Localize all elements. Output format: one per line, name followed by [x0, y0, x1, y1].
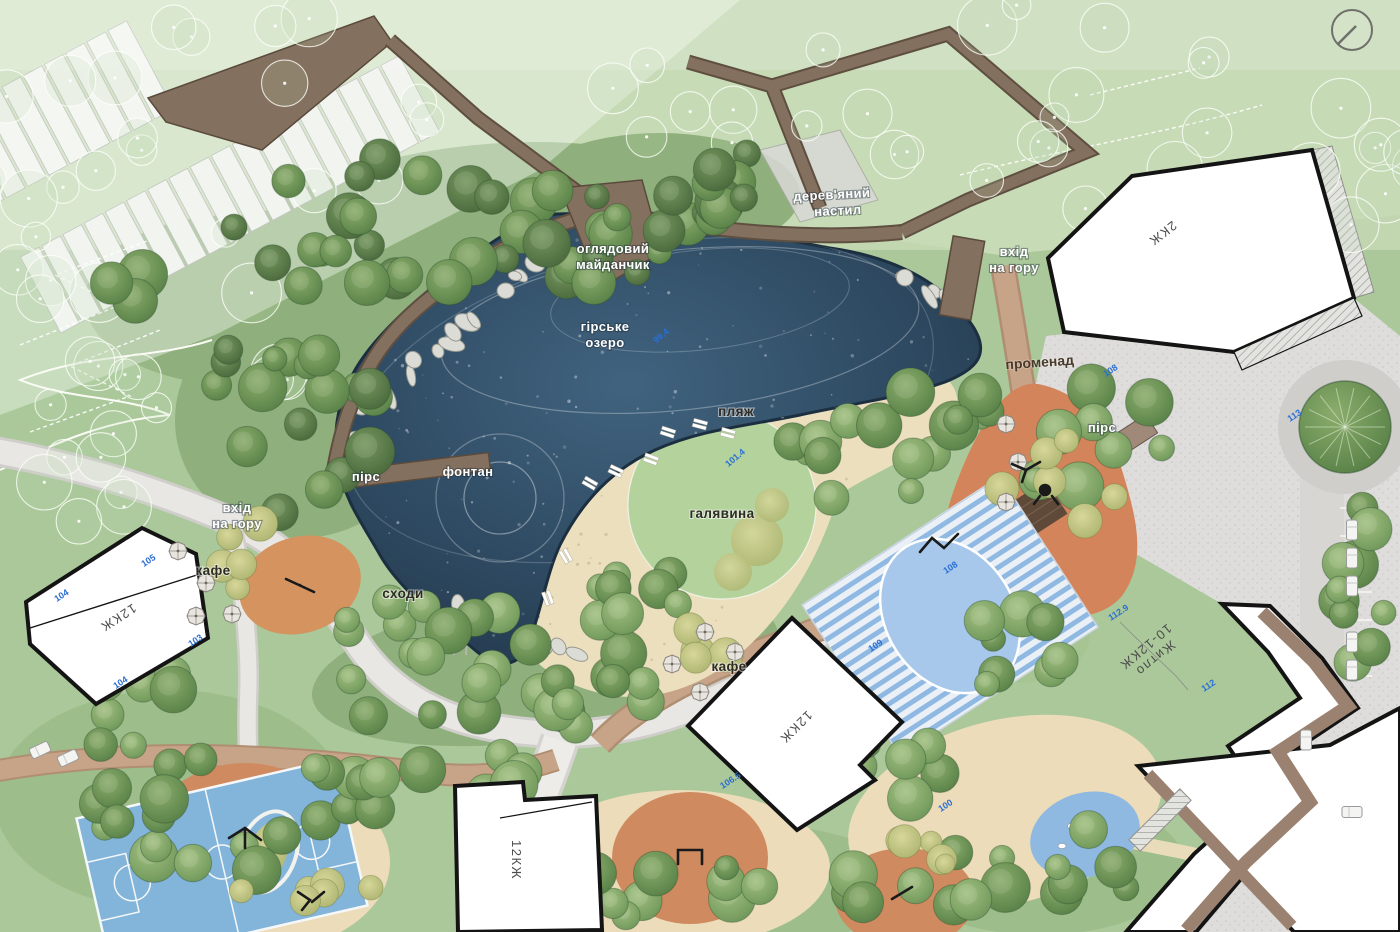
tree	[654, 176, 693, 215]
tree	[741, 868, 777, 904]
tree	[523, 220, 571, 268]
tree	[975, 671, 1000, 696]
outline-tree	[630, 48, 665, 83]
shrub	[680, 642, 711, 673]
tree	[1045, 854, 1070, 879]
tree	[140, 775, 188, 823]
outline-tree	[1080, 3, 1129, 52]
outline-tree	[76, 433, 125, 482]
tree	[1095, 846, 1137, 888]
tree	[255, 245, 291, 281]
outline-tree	[1017, 121, 1058, 162]
car	[1342, 807, 1362, 818]
shrub	[229, 879, 253, 903]
umbrella	[691, 683, 709, 701]
tree	[221, 214, 247, 240]
outline-tree	[410, 103, 444, 137]
label-lawn: галявина	[689, 506, 754, 521]
tree	[101, 805, 135, 839]
car	[1301, 730, 1312, 750]
car	[1347, 520, 1358, 540]
tree	[263, 347, 287, 371]
tree	[174, 844, 211, 881]
tree	[714, 856, 738, 880]
shrub	[1102, 484, 1128, 510]
tree	[693, 148, 736, 191]
shrub	[359, 875, 384, 900]
tree	[1027, 603, 1064, 640]
shrub	[935, 854, 955, 874]
tree	[627, 667, 659, 699]
outline-tree	[17, 275, 64, 322]
tree	[120, 732, 146, 758]
tree	[634, 851, 679, 896]
tree	[1042, 642, 1078, 678]
tree	[214, 335, 243, 364]
tree	[899, 479, 924, 504]
tree	[403, 156, 442, 195]
outline-tree	[152, 5, 196, 49]
outline-tree	[17, 455, 72, 510]
outline-tree	[843, 89, 892, 138]
tree	[84, 728, 118, 762]
label-beach: пляж	[718, 404, 754, 419]
tree	[475, 180, 510, 215]
label-building-12kzh-bottom: 12КЖ	[509, 840, 524, 880]
tree	[950, 879, 992, 921]
tree	[730, 184, 757, 211]
outline-tree	[626, 117, 667, 158]
tree	[184, 743, 217, 776]
outline-tree	[670, 92, 710, 132]
masterplan-svg: дерев'яний настил оглядовий майданчик гі…	[0, 0, 1400, 932]
umbrella	[997, 493, 1015, 511]
tree	[418, 701, 446, 729]
tree	[407, 637, 445, 675]
label-hill-left-line2: на гору	[212, 516, 262, 531]
masterplan-map: дерев'яний настил оглядовий майданчик гі…	[0, 0, 1400, 932]
shrub	[888, 825, 921, 858]
tree	[1371, 600, 1396, 625]
tree	[944, 405, 973, 434]
car	[1347, 632, 1358, 652]
tree	[141, 831, 172, 862]
tree	[344, 260, 389, 305]
outline-tree	[88, 51, 142, 105]
outline-tree	[891, 135, 924, 168]
outline-tree	[0, 170, 57, 227]
outline-tree	[118, 118, 158, 158]
tree	[604, 204, 631, 231]
tree	[964, 601, 1004, 641]
outline-tree	[76, 151, 115, 190]
umbrella	[223, 605, 241, 623]
tree	[305, 471, 343, 509]
tree	[340, 198, 377, 235]
car	[1347, 660, 1358, 680]
tree	[1070, 811, 1108, 849]
outline-tree	[970, 164, 1004, 198]
tree	[92, 769, 131, 808]
tree	[843, 882, 884, 923]
tree	[284, 408, 317, 441]
outline-tree	[806, 33, 840, 67]
car	[1347, 576, 1358, 596]
label-viewing-line2: майданчик	[576, 257, 650, 272]
outline-tree	[45, 55, 96, 106]
tree	[552, 688, 584, 720]
tree	[360, 758, 400, 798]
label-wooden-deck-line2: настил	[814, 202, 862, 219]
umbrella	[169, 542, 187, 560]
shrub	[226, 549, 256, 579]
label-cafe-left: кафе	[195, 563, 230, 578]
tree	[462, 663, 501, 702]
tree	[814, 480, 849, 515]
outline-tree	[35, 389, 66, 420]
tree	[320, 235, 352, 267]
outline-tree	[97, 480, 152, 535]
tree	[597, 665, 630, 698]
tree	[301, 754, 329, 782]
tree	[272, 164, 305, 197]
label-viewing-line1: оглядовий	[577, 241, 650, 256]
tree	[510, 624, 551, 665]
shrub	[290, 885, 320, 915]
tree	[427, 260, 472, 305]
tree	[585, 184, 610, 209]
tree	[150, 666, 197, 713]
tree	[804, 437, 841, 474]
label-hill-right-line1: вхід	[1000, 244, 1029, 259]
roundabout-tree	[1299, 381, 1391, 473]
tree	[400, 747, 446, 793]
tree	[284, 267, 322, 305]
tree	[893, 438, 934, 479]
umbrella	[187, 607, 205, 625]
outline-tree	[56, 499, 101, 544]
label-hill-left-line1: вхід	[223, 500, 252, 515]
tree	[90, 262, 132, 304]
shrub	[1068, 504, 1103, 539]
tree	[227, 426, 267, 466]
tree	[298, 335, 339, 376]
label-pier-right: пірс	[1088, 420, 1116, 435]
tree	[1353, 628, 1391, 666]
tree	[349, 697, 387, 735]
label-hill-right-line2: на гору	[989, 260, 1039, 275]
tree	[337, 665, 366, 694]
tree	[387, 257, 423, 293]
label-lake-line2: озеро	[585, 335, 624, 350]
tree	[532, 170, 573, 211]
tree	[335, 607, 360, 632]
tree	[1126, 379, 1174, 427]
north-indicator-icon	[1332, 10, 1372, 50]
umbrella	[663, 655, 681, 673]
label-fountain: фонтан	[443, 464, 494, 479]
tree	[888, 776, 933, 821]
outline-tree	[255, 5, 296, 46]
label-cafe-center: кафе	[711, 659, 746, 674]
tree	[345, 161, 375, 191]
umbrella	[696, 623, 714, 641]
outline-tree	[262, 60, 308, 106]
tree	[643, 210, 685, 252]
outline-tree	[792, 111, 822, 141]
tree	[349, 368, 390, 409]
car	[1347, 548, 1358, 568]
label-pier-left: пірс	[352, 469, 380, 484]
umbrella	[997, 415, 1015, 433]
outline-tree	[116, 354, 162, 400]
tree	[1329, 600, 1358, 629]
tree	[886, 368, 935, 417]
label-lake-line1: гірське	[581, 319, 630, 334]
tree	[1149, 435, 1175, 461]
tree	[898, 868, 934, 904]
tree	[886, 739, 926, 779]
outline-tree	[65, 337, 114, 386]
tree	[602, 593, 644, 635]
label-stairs: сходи	[382, 586, 423, 601]
shrub	[1054, 429, 1078, 453]
outline-tree	[1188, 48, 1219, 79]
